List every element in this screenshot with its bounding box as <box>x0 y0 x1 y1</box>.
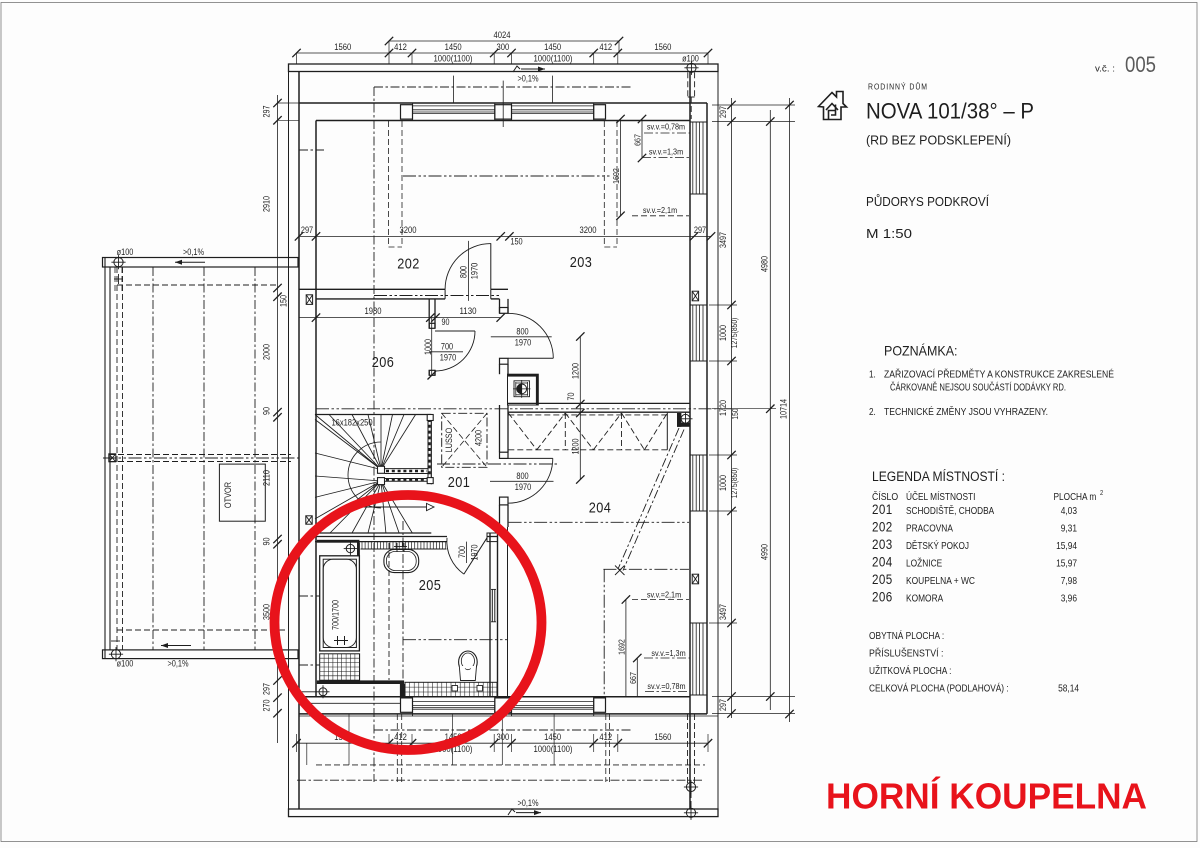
svg-text:700/1700: 700/1700 <box>331 600 341 630</box>
svg-text:206: 206 <box>872 590 893 605</box>
svg-text:150: 150 <box>279 295 289 307</box>
svg-text:>0,1%: >0,1% <box>517 74 538 84</box>
svg-text:297: 297 <box>718 106 728 118</box>
svg-text:150: 150 <box>731 408 740 420</box>
svg-text:2: 2 <box>1100 490 1103 497</box>
svg-text:sv.v.=1,3m: sv.v.=1,3m <box>651 648 685 658</box>
svg-text:1560: 1560 <box>654 42 671 52</box>
svg-text:4,03: 4,03 <box>1061 506 1078 517</box>
svg-text:CELKOVÁ PLOCHA (PODLAHOVÁ) :: CELKOVÁ PLOCHA (PODLAHOVÁ) : <box>869 682 1009 695</box>
svg-text:3497: 3497 <box>718 604 728 620</box>
svg-text:PŘÍSLUŠENSTVÍ :: PŘÍSLUŠENSTVÍ : <box>869 647 944 660</box>
svg-text:LEGENDA MÍSTNOSTÍ :: LEGENDA MÍSTNOSTÍ : <box>872 468 1005 485</box>
svg-text:3497: 3497 <box>718 232 728 248</box>
svg-text:1275(850): 1275(850) <box>730 317 739 348</box>
svg-text:3200: 3200 <box>400 225 417 235</box>
svg-text:ČÁRKOVANĚ NEJSOU SOUČÁSTÍ DODÁ: ČÁRKOVANĚ NEJSOU SOUČÁSTÍ DODÁVKY RD. <box>890 381 1066 394</box>
svg-text:RODINNÝ DŮM: RODINNÝ DŮM <box>868 81 928 92</box>
svg-text:800: 800 <box>459 266 469 278</box>
svg-text:297: 297 <box>694 225 706 235</box>
svg-text:90: 90 <box>262 407 272 415</box>
svg-text:1692: 1692 <box>611 168 621 184</box>
svg-text:>0,1%: >0,1% <box>517 798 538 808</box>
svg-text:7,98: 7,98 <box>1061 576 1078 587</box>
svg-text:1450: 1450 <box>544 42 561 52</box>
svg-text:1970: 1970 <box>515 482 531 492</box>
svg-text:800: 800 <box>516 327 528 337</box>
svg-text:412: 412 <box>394 732 407 742</box>
svg-text:sv.v.=0,78m: sv.v.=0,78m <box>647 681 685 691</box>
svg-text:M 1:50: M 1:50 <box>866 226 912 241</box>
svg-text:KOMORA: KOMORA <box>906 594 943 605</box>
svg-text:SCHODIŠTĚ, CHODBA: SCHODIŠTĚ, CHODBA <box>906 504 994 517</box>
svg-text:UŽITKOVÁ PLOCHA :: UŽITKOVÁ PLOCHA : <box>869 664 952 677</box>
svg-text:2000: 2000 <box>262 344 272 360</box>
svg-text:POZNÁMKA:: POZNÁMKA: <box>884 343 958 359</box>
svg-text:10714: 10714 <box>779 399 789 419</box>
svg-text:700: 700 <box>441 342 453 352</box>
svg-text:204: 204 <box>589 500 612 517</box>
svg-text:1000(1100): 1000(1100) <box>434 54 473 64</box>
svg-text:v.č. :: v.č. : <box>1095 64 1115 74</box>
svg-text:4980: 4980 <box>760 256 770 272</box>
svg-text:2.: 2. <box>869 407 876 418</box>
svg-text:412: 412 <box>599 732 612 742</box>
svg-text:ZAŘIZOVACÍ PŘEDMĚTY A KONSTRUK: ZAŘIZOVACÍ PŘEDMĚTY A KONSTRUKCE ZAKRESL… <box>884 368 1114 381</box>
svg-text:667: 667 <box>633 134 643 146</box>
svg-text:PŮDORYS PODKROVÍ: PŮDORYS PODKROVÍ <box>866 194 989 209</box>
svg-text:2910: 2910 <box>262 196 272 212</box>
svg-text:1450: 1450 <box>544 732 561 742</box>
svg-text:3,96: 3,96 <box>1061 594 1078 605</box>
svg-text:1000: 1000 <box>718 325 728 341</box>
svg-text:KOUPELNA + WC: KOUPELNA + WC <box>906 576 975 587</box>
svg-text:1000: 1000 <box>718 475 728 491</box>
svg-text:90: 90 <box>442 317 450 327</box>
svg-text:005: 005 <box>1125 52 1156 77</box>
svg-text:1000(1100): 1000(1100) <box>534 54 573 64</box>
svg-text:1970: 1970 <box>470 263 480 279</box>
svg-text:1130: 1130 <box>460 306 477 316</box>
svg-text:297: 297 <box>718 699 728 711</box>
svg-text:16x182x250: 16x182x250 <box>331 418 372 428</box>
svg-text:1970: 1970 <box>470 544 480 560</box>
svg-text:300: 300 <box>497 732 510 742</box>
svg-text:201: 201 <box>872 502 893 517</box>
svg-text:1692: 1692 <box>617 639 627 655</box>
svg-text:202: 202 <box>397 256 420 273</box>
svg-text:1970: 1970 <box>515 338 531 348</box>
svg-text:HORNÍ KOUPELNA: HORNÍ KOUPELNA <box>826 776 1147 817</box>
svg-text:(RD BEZ PODSKLEPENÍ): (RD BEZ PODSKLEPENÍ) <box>866 133 1011 148</box>
svg-text:1980: 1980 <box>365 306 382 316</box>
svg-text:1970: 1970 <box>440 353 456 363</box>
svg-text:297: 297 <box>262 683 272 695</box>
svg-text:150: 150 <box>510 237 522 247</box>
svg-text:203: 203 <box>570 254 593 271</box>
svg-text:4200: 4200 <box>474 430 484 446</box>
svg-text:1275(850): 1275(850) <box>730 467 739 498</box>
svg-text:15,94: 15,94 <box>1056 541 1077 552</box>
svg-text:ø100: ø100 <box>117 659 134 669</box>
svg-text:3200: 3200 <box>580 225 597 235</box>
svg-text:>0,1%: >0,1% <box>167 659 188 669</box>
svg-text:15,97: 15,97 <box>1056 559 1077 570</box>
svg-text:203: 203 <box>872 537 893 552</box>
svg-text:NOVA 101/38° – P: NOVA 101/38° – P <box>866 99 1034 124</box>
svg-text:sv.v.=0,78m: sv.v.=0,78m <box>647 122 685 132</box>
svg-text:TECHNICKÉ ZMĚNY JSOU VYHRAZENY: TECHNICKÉ ZMĚNY JSOU VYHRAZENY. <box>884 405 1048 418</box>
svg-text:sv.v.=2,1m: sv.v.=2,1m <box>647 589 681 599</box>
svg-text:1000(1100): 1000(1100) <box>534 744 573 754</box>
svg-text:sv.v.=1,3m: sv.v.=1,3m <box>649 147 683 157</box>
svg-text:412: 412 <box>394 42 407 52</box>
svg-text:1560: 1560 <box>334 42 351 52</box>
svg-text:1720: 1720 <box>718 400 728 416</box>
svg-text:LOŽNICE: LOŽNICE <box>906 557 942 570</box>
svg-text:204: 204 <box>872 555 893 570</box>
svg-text:300: 300 <box>497 42 510 52</box>
svg-text:206: 206 <box>372 354 395 371</box>
svg-text:800: 800 <box>516 471 528 481</box>
svg-text:4024: 4024 <box>494 30 511 40</box>
svg-text:667: 667 <box>628 672 638 684</box>
svg-text:ÚČEL MÍSTNOSTI: ÚČEL MÍSTNOSTI <box>906 490 975 503</box>
svg-text:58,14: 58,14 <box>1058 684 1079 695</box>
svg-text:1000: 1000 <box>423 339 433 355</box>
svg-text:205: 205 <box>419 577 442 594</box>
svg-text:9,31: 9,31 <box>1061 524 1078 535</box>
svg-text:1.: 1. <box>869 370 876 381</box>
svg-text:ø100: ø100 <box>682 54 699 64</box>
svg-text:ø100: ø100 <box>117 247 134 257</box>
svg-text:OTVOR: OTVOR <box>223 482 233 509</box>
svg-text:297: 297 <box>301 225 313 235</box>
svg-text:DĚTSKÝ POKOJ: DĚTSKÝ POKOJ <box>906 539 969 552</box>
svg-text:205: 205 <box>872 572 893 587</box>
svg-text:OBYTNÁ PLOCHA :: OBYTNÁ PLOCHA : <box>869 629 944 642</box>
svg-text:LUSSO: LUSSO <box>444 428 454 453</box>
svg-text:>0,1%: >0,1% <box>183 247 204 257</box>
svg-text:1450: 1450 <box>445 42 462 52</box>
svg-text:1200: 1200 <box>571 438 581 454</box>
svg-text:700: 700 <box>457 546 467 558</box>
svg-text:PRACOVNA: PRACOVNA <box>906 524 953 535</box>
svg-text:sv.v.=2,1m: sv.v.=2,1m <box>643 205 677 215</box>
svg-text:1200: 1200 <box>571 363 581 379</box>
svg-text:2110: 2110 <box>262 470 272 486</box>
svg-text:412: 412 <box>599 42 612 52</box>
svg-text:201: 201 <box>448 474 471 491</box>
svg-text:270: 270 <box>262 699 272 711</box>
svg-text:PLOCHA m: PLOCHA m <box>1054 492 1097 503</box>
svg-text:4990: 4990 <box>760 544 770 560</box>
svg-text:202: 202 <box>872 520 893 535</box>
svg-text:90: 90 <box>262 537 272 545</box>
svg-text:1560: 1560 <box>654 732 671 742</box>
svg-text:297: 297 <box>262 105 272 117</box>
svg-text:70: 70 <box>566 392 576 400</box>
